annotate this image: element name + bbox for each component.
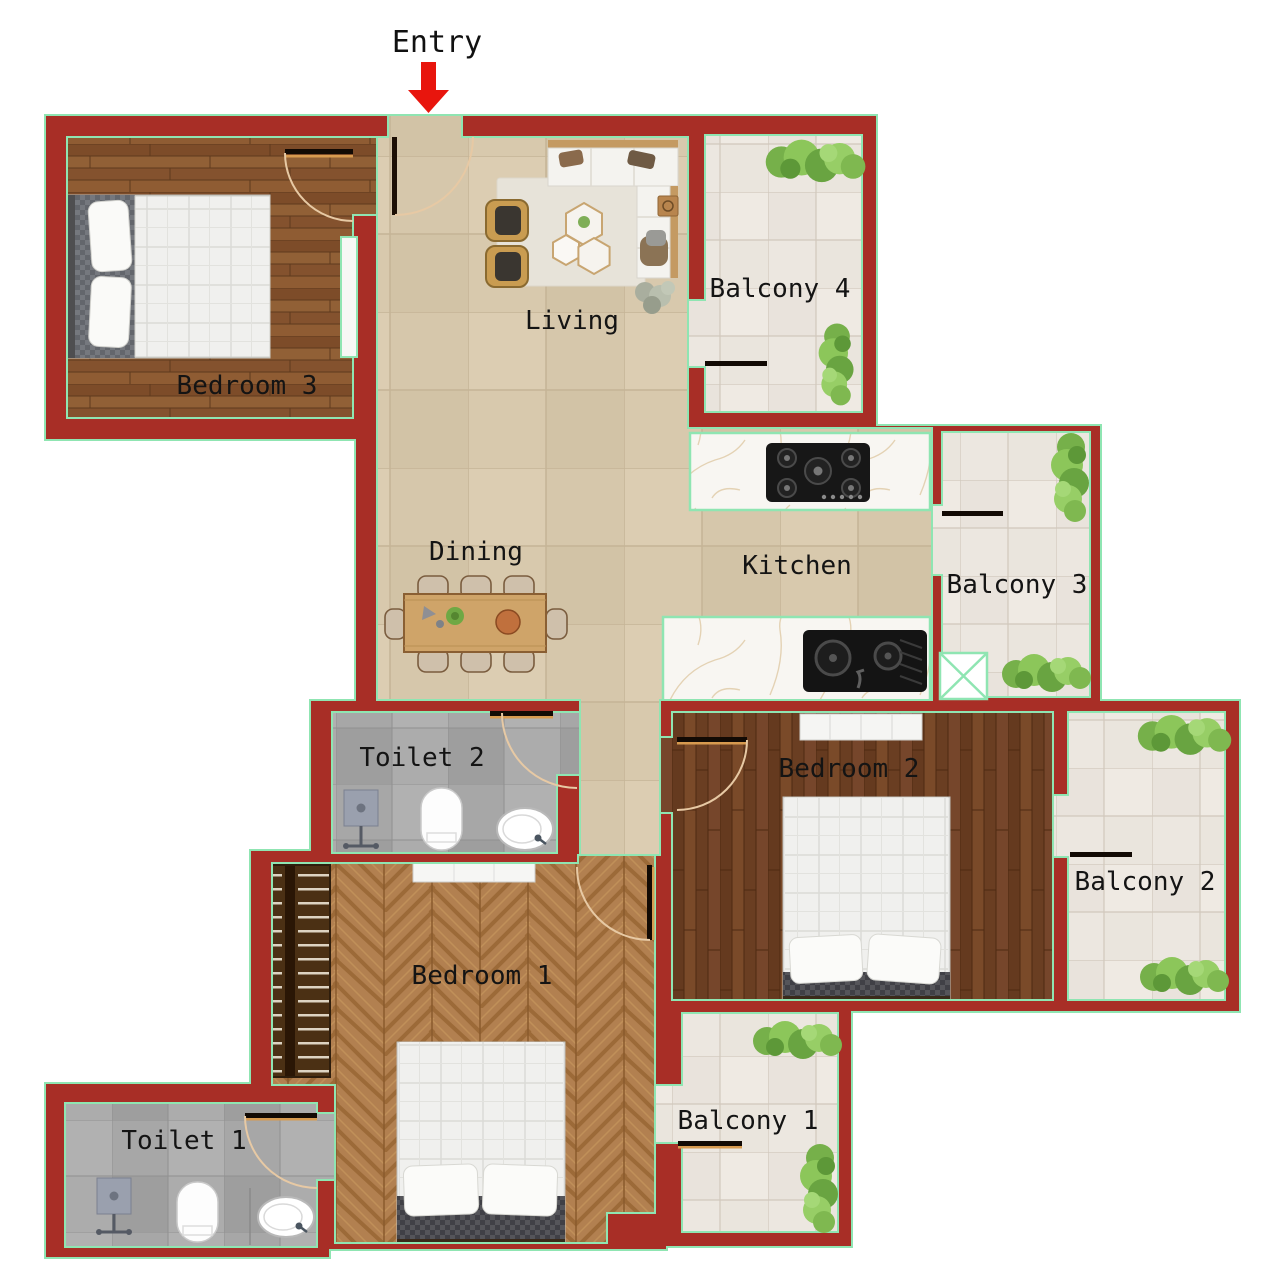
bed-bedroom-2: [783, 797, 950, 1000]
bed-bedroom-1: [397, 1042, 565, 1243]
toilet-2-label: Toilet 2: [359, 743, 484, 773]
kitchen-label: Kitchen: [742, 551, 852, 581]
balcony-3-label: Balcony 3: [947, 570, 1088, 600]
balcony-3-window-marker: [942, 511, 1003, 516]
bedroom-2-door-leaf: [677, 737, 747, 745]
entry-arrow: [408, 62, 449, 113]
balcony-1-label: Balcony 1: [678, 1106, 819, 1136]
dining-table: [404, 594, 546, 652]
floor-plan: Entry Bedroom 3 Living Balcony 4 Kitchen…: [0, 0, 1273, 1280]
bedroom-3-door-leaf: [285, 149, 353, 158]
toilet-2-window-marker: [490, 711, 553, 719]
toilet-1-label: Toilet 1: [121, 1126, 246, 1156]
dining-label: Dining: [429, 537, 523, 567]
bedroom-1-label: Bedroom 1: [412, 961, 553, 991]
kitchen-sink: [803, 630, 927, 692]
balcony-4-window-marker: [705, 361, 767, 366]
floor-plan-canvas: Entry Bedroom 3 Living Balcony 4 Kitchen…: [0, 0, 1273, 1280]
armchair: [486, 246, 528, 287]
balcony-4-label: Balcony 4: [710, 274, 851, 304]
balcony-2-window-marker: [1070, 852, 1132, 857]
service-shaft: [940, 653, 987, 699]
toilet-fixture: [421, 788, 462, 850]
toilet-fixture: [177, 1182, 218, 1242]
stove: [766, 443, 870, 502]
bedroom-2-label: Bedroom 2: [779, 754, 920, 784]
armchair: [486, 200, 528, 241]
balcony-2-label: Balcony 2: [1075, 867, 1216, 897]
entry-door-leaf: [392, 137, 397, 215]
balcony-1-window-marker: [678, 1141, 742, 1149]
bedroom-1-door-leaf: [647, 865, 655, 940]
bed-bedroom-3: [67, 195, 270, 358]
entry-label: Entry: [392, 25, 482, 60]
bedroom-3-label: Bedroom 3: [177, 371, 318, 401]
dresser: [413, 863, 535, 882]
wardrobe: [272, 865, 330, 1077]
hall-niche: [341, 237, 357, 357]
toilet-1-door-leaf: [245, 1113, 317, 1121]
living-label: Living: [525, 306, 619, 336]
